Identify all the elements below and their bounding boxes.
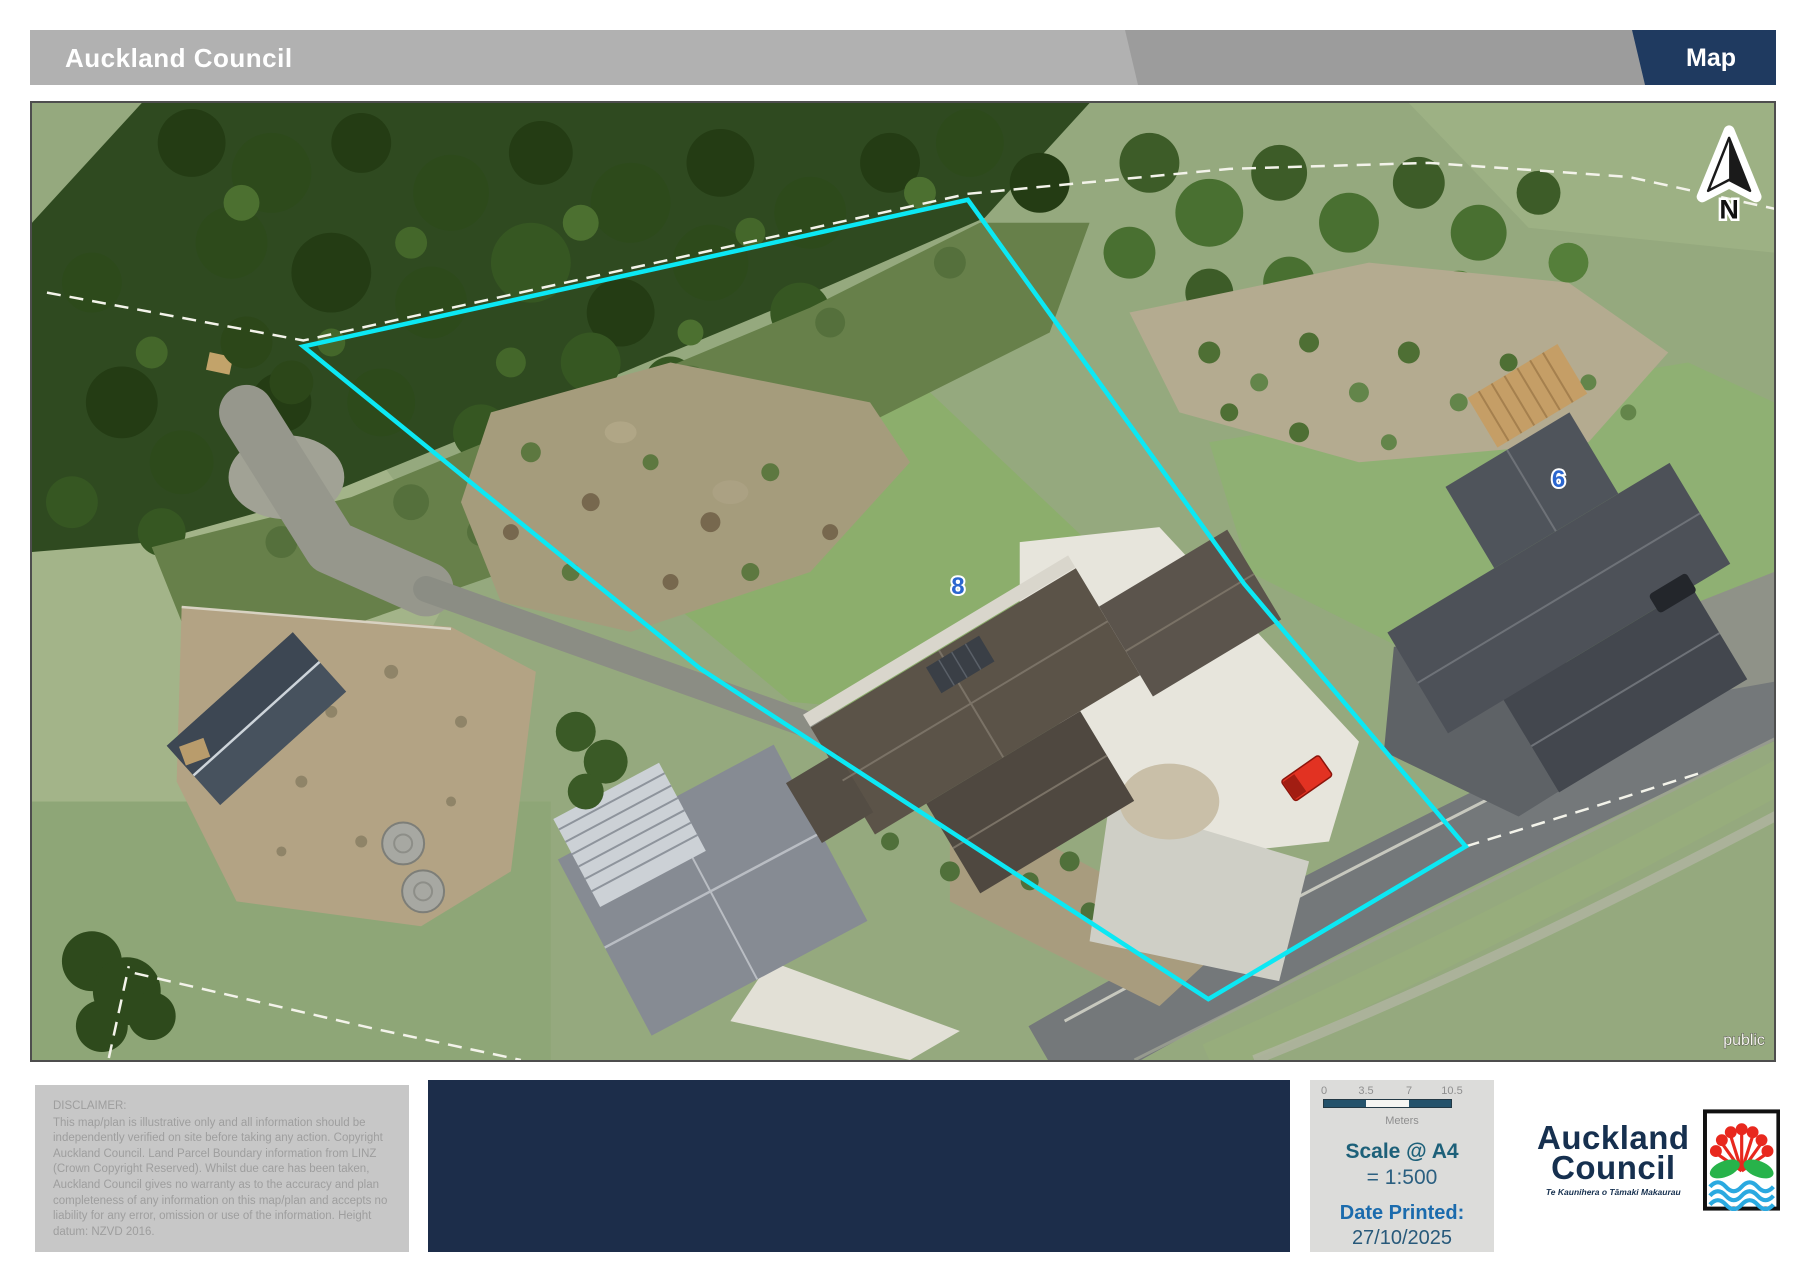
tick-7: 7 [1406, 1085, 1412, 1097]
auckland-council-logo: Auckland Council Te Kaunihera o Tāmaki M… [1530, 1105, 1780, 1215]
date-printed-value: 27/10/2025 [1310, 1227, 1494, 1250]
scalebar [1323, 1099, 1452, 1108]
tick-10-5: 10.5 [1441, 1085, 1462, 1097]
tab-map: Map [1686, 44, 1736, 73]
scalebar-segment [1409, 1100, 1451, 1107]
map-print-page: Auckland Council Map [0, 0, 1811, 1280]
public-label: public [1723, 1032, 1765, 1049]
logo-text: Auckland Council Te Kaunihera o Tāmaki M… [1530, 1123, 1697, 1197]
logo-line2: Council [1551, 1153, 1676, 1183]
scalebar-segment [1366, 1100, 1408, 1107]
disclaimer-title: DISCLAIMER: [53, 1099, 391, 1115]
scale-panel: 0 3.5 7 10.5 Meters Scale @ A4 = 1:500 D… [1310, 1080, 1494, 1252]
house-number-8: 8 [951, 573, 964, 600]
map-viewport: 8 6 public N [30, 101, 1776, 1062]
scalebar-segment [1324, 1100, 1366, 1107]
scalebar-ticks: 0 3.5 7 10.5 [1310, 1085, 1494, 1097]
pohutukawa-logo-icon [1703, 1109, 1780, 1211]
scalebar-units: Meters [1310, 1115, 1494, 1127]
scale-label: Scale @ A4 [1310, 1140, 1494, 1164]
disclaimer-box: DISCLAIMER: This map/plan is illustrativ… [35, 1085, 409, 1252]
disclaimer-text: This map/plan is illustrative only and a… [53, 1116, 391, 1241]
aerial-photo: 8 6 public N [32, 103, 1774, 1060]
logo-tagline: Te Kaunihera o Tāmaki Makaurau [1546, 1187, 1681, 1197]
footer-navy-panel [428, 1080, 1290, 1252]
header-bar: Auckland Council Map [30, 30, 1776, 85]
page-title: Auckland Council [65, 43, 293, 74]
tick-0: 0 [1321, 1085, 1327, 1097]
tick-3-5: 3.5 [1358, 1085, 1373, 1097]
house-number-6: 6 [1552, 466, 1565, 493]
date-printed-label: Date Printed: [1310, 1202, 1494, 1225]
scale-value: = 1:500 [1310, 1166, 1494, 1190]
north-label: N [1719, 195, 1738, 225]
